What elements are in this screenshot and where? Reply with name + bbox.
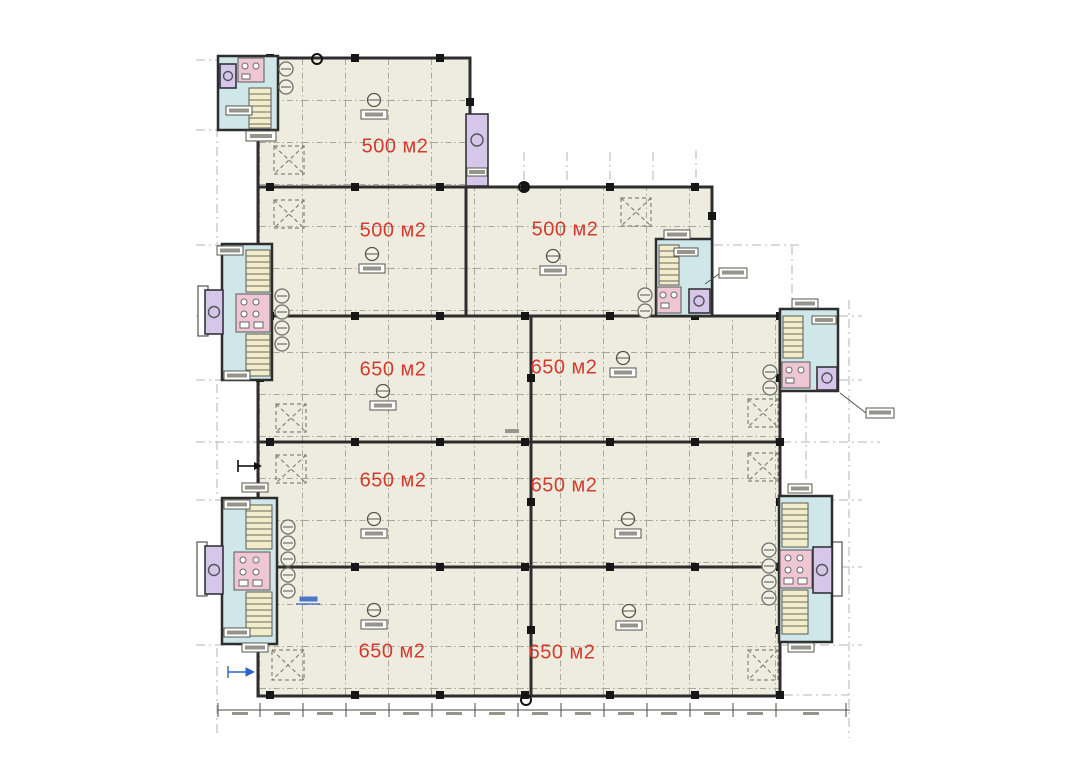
- room-area-label-6: 650 м2: [360, 470, 427, 493]
- room-area-label-8: 650 м2: [359, 641, 426, 664]
- dim-note: [505, 429, 519, 433]
- room-area-label-7: 650 м2: [531, 475, 598, 498]
- floor-plan: 500 м2 500 м2 500 м2 650 м2 650 м2 650 м…: [0, 0, 1072, 768]
- room-outlines: [258, 58, 780, 696]
- room-area-label-5: 650 м2: [531, 357, 598, 380]
- room-6-outline: [258, 442, 531, 567]
- room-8-outline: [258, 567, 531, 696]
- room-9-outline: [531, 567, 780, 696]
- room-area-label-9: 650 м2: [529, 642, 596, 665]
- room-7-outline: [531, 442, 780, 567]
- room-area-label-4: 650 м2: [360, 359, 427, 382]
- room-area-label-2: 500 м2: [360, 220, 427, 243]
- room-area-label-1: 500 м2: [362, 136, 429, 159]
- elevator-shaft-top: [466, 114, 488, 186]
- room-area-label-3: 500 м2: [532, 219, 599, 242]
- room-1-outline: [258, 58, 470, 187]
- stair-core-right-middle: [763, 299, 894, 418]
- dimension-line: [218, 703, 850, 717]
